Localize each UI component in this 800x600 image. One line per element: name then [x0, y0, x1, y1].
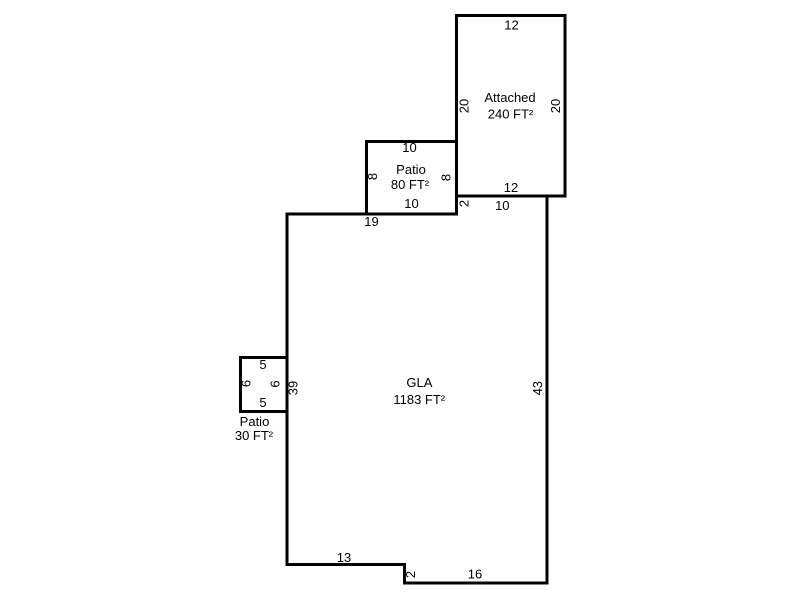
- svg-text:GLA: GLA: [406, 375, 432, 390]
- svg-text:5: 5: [259, 357, 266, 372]
- svg-text:2: 2: [403, 571, 418, 578]
- svg-text:12: 12: [504, 18, 518, 33]
- svg-text:Patio: Patio: [240, 414, 270, 429]
- svg-text:Attached: Attached: [484, 90, 535, 105]
- svg-text:8: 8: [365, 173, 380, 180]
- svg-text:10: 10: [402, 140, 416, 155]
- svg-text:2: 2: [456, 200, 471, 207]
- svg-text:10: 10: [404, 196, 418, 211]
- svg-text:19: 19: [364, 214, 378, 229]
- svg-text:20: 20: [457, 99, 472, 113]
- svg-text:39: 39: [286, 381, 301, 395]
- svg-text:43: 43: [530, 381, 545, 395]
- svg-text:20: 20: [548, 99, 563, 113]
- svg-text:30 FT²: 30 FT²: [235, 428, 274, 443]
- svg-text:Patio: Patio: [396, 162, 426, 177]
- svg-text:13: 13: [337, 550, 351, 565]
- svg-text:6: 6: [238, 380, 253, 387]
- svg-text:16: 16: [468, 567, 482, 582]
- svg-text:10: 10: [495, 198, 509, 213]
- svg-text:6: 6: [268, 380, 283, 387]
- svg-text:240 FT²: 240 FT²: [488, 107, 534, 122]
- svg-text:80 FT²: 80 FT²: [391, 177, 430, 192]
- svg-text:8: 8: [439, 174, 454, 181]
- svg-text:5: 5: [259, 395, 266, 410]
- svg-text:1183 FT²: 1183 FT²: [393, 392, 445, 407]
- svg-text:12: 12: [504, 180, 518, 195]
